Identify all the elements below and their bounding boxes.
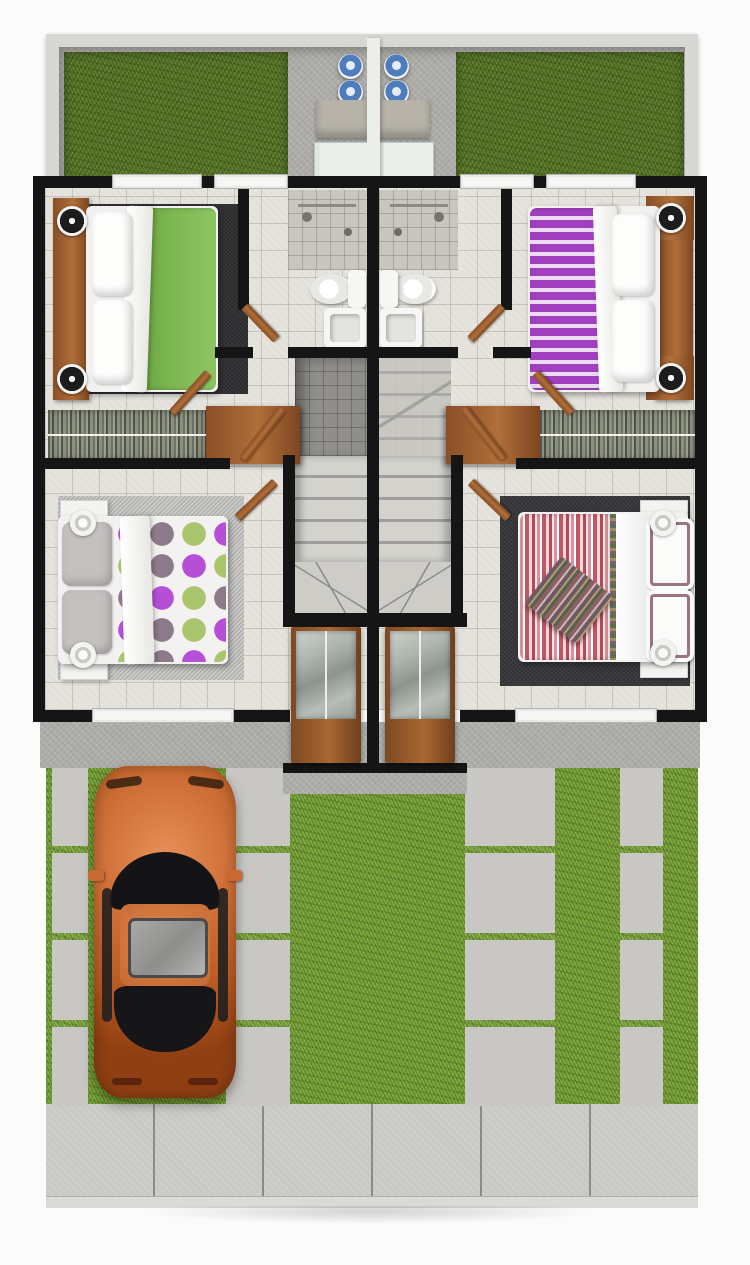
pillow [612,214,654,296]
gas-tank [338,54,363,79]
bathroom-sink [380,308,422,348]
wall-bath-right [501,188,512,310]
speaker-lamp [57,364,87,394]
white-sheet [616,514,648,660]
pillow [92,212,132,296]
closet-rail [540,434,698,436]
stair-landing-void [295,352,367,456]
wall-closet-right [516,458,706,469]
car-side-window [102,888,112,1022]
wall-closet-left [40,458,230,469]
backyard-lawn-right [456,52,684,186]
paver-strip [52,766,88,1106]
shower-bar [298,204,356,207]
car-mirror [226,870,242,881]
car-taillight [188,1078,218,1085]
round-lamp [70,510,96,536]
toilet-tank [380,270,398,308]
paver-strip-wide [465,766,555,1106]
back-window-sill [214,174,288,189]
wall-left [33,176,45,722]
floor-plan-scene [0,0,750,1265]
closet-rail [48,434,206,436]
shower-bar [390,204,448,207]
bed-top-left [86,206,218,392]
wall-bath-left [238,188,249,310]
wall-hall-2 [288,347,379,358]
pillow [92,300,132,384]
gas-tank [384,54,409,79]
stair-steps [295,456,367,562]
back-window-sill [112,174,202,189]
wall-entry-front [283,763,467,773]
sheet-fold [119,516,154,665]
backyard-party-fence [367,38,380,186]
laundry-counter [316,100,368,138]
paver-strip-narrow [620,766,663,1106]
stair-winder-steps [379,562,451,613]
wall-hall-3 [367,347,458,358]
stair-steps [379,352,451,456]
pillow [612,300,654,382]
wall-hall-1 [215,347,253,358]
shower-head [302,212,312,222]
wall-right [695,176,707,722]
speaker-lamp [656,203,686,233]
front-window-sill [92,708,234,723]
parked-car [94,766,236,1098]
entry-glass-door [385,627,455,763]
toilet [310,274,352,304]
staircase-right [379,352,451,613]
shower-right [379,190,458,270]
wall-stair-left [283,455,295,627]
speaker-lamp [57,206,87,236]
sidewalk [46,1104,698,1196]
toilet [394,274,436,304]
backyard-lawn-left [64,52,288,186]
shower-drain [394,228,402,236]
bathroom-sink [324,308,366,348]
closet-hanging-clothes [540,410,698,460]
staircase-left [295,352,367,613]
closet-hanging-clothes [48,410,206,460]
car-mirror [88,870,104,881]
back-window-sill [460,174,534,189]
shower-head [434,212,444,222]
laundry-counter [378,100,430,138]
bed-top-right [528,206,660,392]
party-wall [367,188,379,773]
car-taillight [112,1078,142,1085]
round-lamp [650,510,676,536]
speaker-lamp [656,363,686,393]
car-sunroof [128,918,208,978]
round-lamp [70,642,96,668]
door-mullion [419,631,421,719]
stair-steps [379,456,451,562]
wall-hall-4 [493,347,531,358]
sink-bowl [330,314,360,342]
sink-bowl [386,314,416,342]
door-mullion [325,631,327,719]
wall-stair-bottom [283,613,467,627]
ground-shadow [70,1206,670,1234]
car-side-window [218,888,228,1022]
toilet-tank [348,270,366,308]
shower-left [288,190,367,270]
front-window-sill [515,708,657,723]
entry-glass-door [291,627,361,763]
back-window-sill [546,174,636,189]
round-lamp [650,640,676,666]
stair-winder-steps [295,562,367,613]
shower-drain [344,228,352,236]
wall-stair-right [451,455,463,627]
